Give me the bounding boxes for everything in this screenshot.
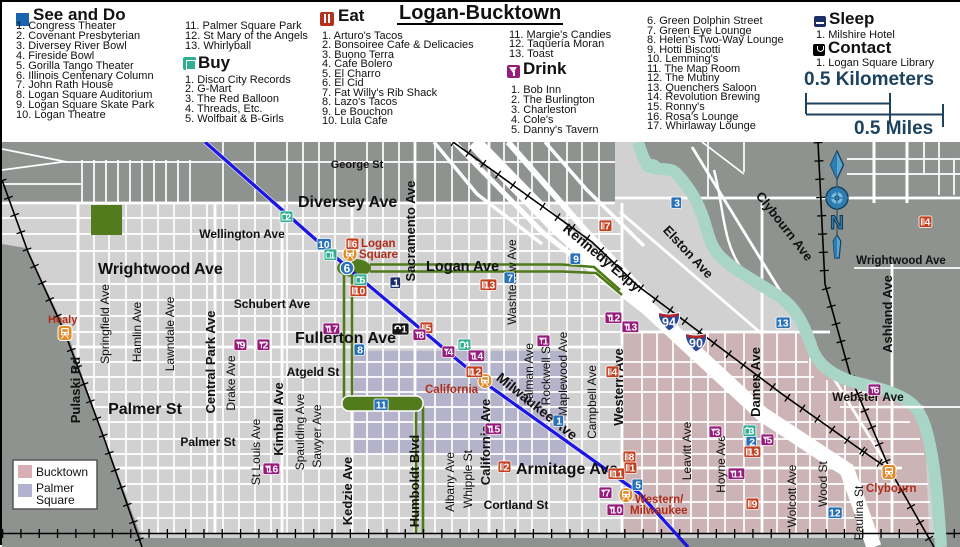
svg-text:Western Ave: Western Ave: [611, 348, 626, 426]
svg-text:California Ave: California Ave: [478, 399, 493, 485]
svg-text:3: 3: [715, 428, 721, 439]
svg-text:5: 5: [426, 324, 432, 335]
svg-text:4: 4: [448, 348, 454, 359]
svg-text:14: 14: [472, 352, 484, 363]
svg-text:2: 2: [263, 341, 269, 352]
svg-text:N: N: [830, 213, 844, 234]
svg-text:Wrightwood Ave: Wrightwood Ave: [856, 255, 946, 267]
svg-text:Square: Square: [36, 493, 75, 507]
svg-text:8: 8: [419, 331, 425, 342]
svg-text:Wellington Ave: Wellington Ave: [199, 227, 285, 241]
svg-text:12: 12: [829, 509, 841, 520]
svg-text:Kimball Ave: Kimball Ave: [271, 382, 286, 455]
svg-text:11: 11: [612, 470, 623, 481]
svg-text:1: 1: [401, 325, 407, 336]
svg-text:5: 5: [767, 436, 773, 447]
svg-text:California: California: [425, 384, 479, 396]
svg-text:4: 4: [925, 218, 931, 229]
svg-text:11: 11: [376, 401, 387, 412]
svg-text:Campbell Ave: Campbell Ave: [585, 365, 599, 439]
svg-text:Sawyer Ave: Sawyer Ave: [310, 404, 324, 467]
svg-text:10: 10: [354, 287, 366, 298]
svg-text:Rockwell St: Rockwell St: [539, 342, 553, 405]
svg-text:6: 6: [344, 262, 351, 276]
svg-text:Kedzie Ave: Kedzie Ave: [340, 457, 355, 525]
svg-text:10: 10: [611, 506, 623, 517]
svg-text:90: 90: [689, 337, 703, 351]
svg-text:Drake Ave: Drake Ave: [224, 355, 238, 410]
svg-text:12: 12: [470, 368, 482, 379]
svg-text:4: 4: [612, 368, 618, 379]
svg-text:Atgeld St: Atgeld St: [287, 365, 340, 379]
svg-text:13: 13: [748, 448, 760, 459]
svg-text:Paulina St: Paulina St: [852, 485, 866, 540]
svg-text:13: 13: [484, 281, 496, 292]
svg-text:8: 8: [357, 346, 363, 357]
svg-text:9: 9: [240, 341, 246, 352]
svg-text:2: 2: [504, 463, 510, 474]
svg-text:Cortland St: Cortland St: [484, 498, 549, 512]
svg-text:3: 3: [674, 199, 680, 210]
svg-text:2: 2: [286, 213, 292, 224]
svg-text:9: 9: [573, 255, 579, 266]
svg-text:Hoyne Ave: Hoyne Ave: [714, 435, 728, 493]
svg-text:7: 7: [605, 489, 611, 500]
svg-text:Palmer St: Palmer St: [180, 435, 235, 449]
svg-text:Lawndale Ave: Lawndale Ave: [163, 296, 177, 371]
svg-text:Schubert Ave: Schubert Ave: [234, 297, 311, 311]
svg-text:Fullerton Ave: Fullerton Ave: [295, 330, 396, 347]
svg-text:Logan Ave: Logan Ave: [426, 259, 499, 275]
svg-text:George St: George St: [331, 159, 384, 171]
svg-text:Maplewood Ave: Maplewood Ave: [556, 331, 570, 416]
svg-text:15: 15: [489, 425, 501, 436]
svg-text:16: 16: [267, 465, 279, 476]
svg-text:6: 6: [352, 240, 358, 251]
svg-text:1: 1: [630, 464, 636, 475]
svg-text:7: 7: [605, 222, 611, 233]
svg-text:Albany Ave: Albany Ave: [443, 452, 457, 512]
svg-text:11: 11: [732, 470, 743, 481]
svg-text:Pulaski Rd: Pulaski Rd: [68, 357, 83, 424]
svg-text:9: 9: [752, 500, 758, 511]
svg-text:7: 7: [507, 274, 513, 285]
svg-text:Ashland Ave: Ashland Ave: [880, 275, 895, 353]
svg-text:St Louis Ave: St Louis Ave: [249, 418, 263, 485]
svg-text:6: 6: [874, 386, 880, 397]
svg-text:94: 94: [662, 316, 676, 330]
svg-text:Bucktown: Bucktown: [36, 465, 88, 479]
svg-text:Square: Square: [359, 249, 398, 261]
svg-text:Healy: Healy: [48, 314, 78, 326]
svg-text:12: 12: [609, 314, 621, 325]
svg-text:3: 3: [749, 427, 755, 438]
svg-text:Humboldt Blvd: Humboldt Blvd: [407, 435, 422, 527]
svg-text:13: 13: [777, 319, 789, 330]
svg-text:Damen Ave: Damen Ave: [748, 347, 763, 417]
svg-text:Wrightwood Ave: Wrightwood Ave: [98, 261, 223, 278]
svg-text:Wolcott Ave: Wolcott Ave: [785, 464, 799, 527]
svg-text:1: 1: [556, 417, 562, 428]
svg-text:Milwaukee: Milwaukee: [630, 505, 688, 517]
svg-text:Whipple St: Whipple St: [461, 449, 475, 508]
svg-text:5: 5: [360, 276, 366, 287]
svg-text:Spaulding Ave: Spaulding Ave: [293, 393, 307, 470]
svg-text:Leavitt Ave: Leavitt Ave: [680, 421, 694, 480]
svg-text:Armitage Ave: Armitage Ave: [516, 461, 618, 478]
svg-text:Diversey Ave: Diversey Ave: [298, 194, 397, 211]
svg-text:Sacramento Ave: Sacramento Ave: [403, 181, 418, 282]
svg-text:Springfield Ave: Springfield Ave: [98, 284, 112, 364]
svg-text:1: 1: [393, 279, 399, 290]
svg-text:13: 13: [626, 323, 638, 334]
svg-text:Palmer St: Palmer St: [108, 401, 182, 418]
svg-text:Clybourn: Clybourn: [866, 483, 916, 495]
svg-text:17: 17: [327, 325, 339, 336]
svg-text:Hamlin Ave: Hamlin Ave: [130, 301, 144, 362]
svg-text:1: 1: [330, 251, 336, 262]
svg-text:Central Park Ave: Central Park Ave: [203, 310, 218, 413]
svg-text:1: 1: [543, 337, 549, 348]
svg-text:Wood St: Wood St: [816, 460, 830, 506]
svg-text:5: 5: [635, 481, 641, 492]
